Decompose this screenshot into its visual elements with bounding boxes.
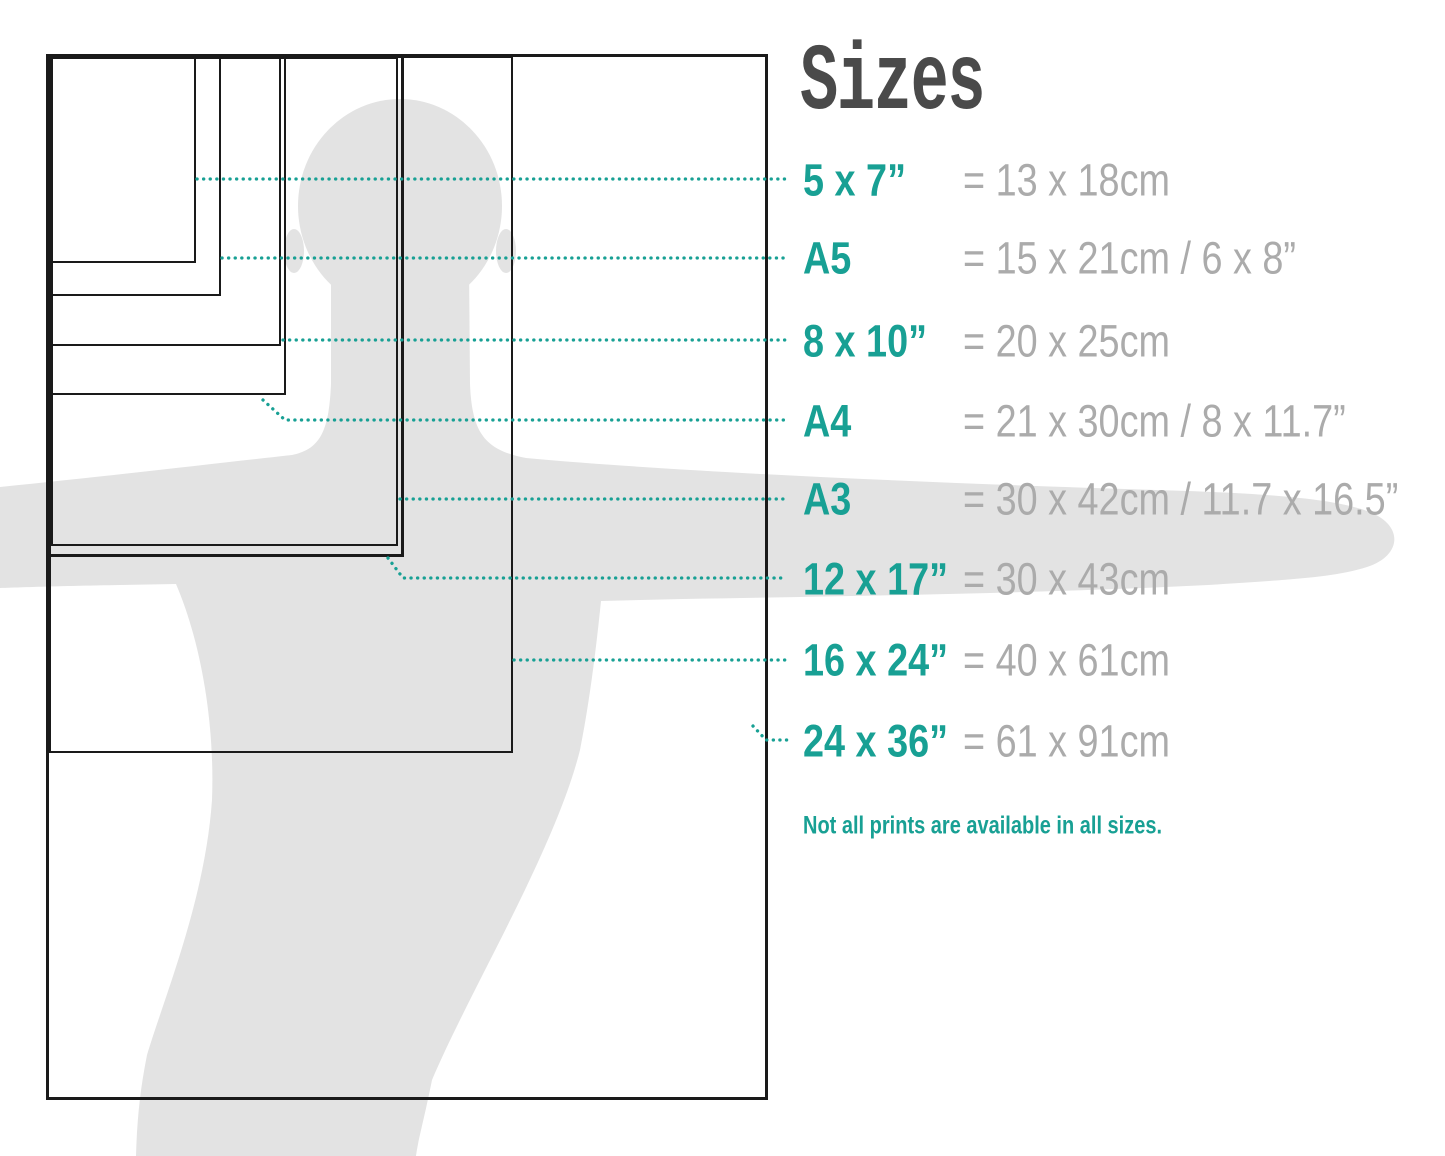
- size-guide-canvas: Sizes 5 x 7”= 13 x 18cmA5= 15 x 21cm / 6…: [0, 0, 1445, 1156]
- size-value: = 15 x 21cm / 6 x 8”: [963, 236, 1296, 281]
- size-value: = 20 x 25cm: [963, 319, 1170, 364]
- print-size-rect-a5: [51, 57, 221, 296]
- pointer-line-a4: [263, 400, 786, 420]
- size-label: 24 x 36”: [803, 719, 948, 764]
- size-label: A3: [803, 477, 851, 522]
- size-label: A4: [803, 399, 851, 444]
- print-size-rect-16x24: [49, 56, 513, 753]
- size-list: 5 x 7”= 13 x 18cmA5= 15 x 21cm / 6 x 8”8…: [0, 0, 1445, 1156]
- silhouette-ear-left: [284, 229, 304, 273]
- size-value: = 30 x 42cm / 11.7 x 16.5”: [963, 477, 1398, 522]
- person-silhouette: [0, 0, 1445, 1156]
- size-value: = 21 x 30cm / 8 x 11.7”: [963, 399, 1346, 444]
- print-size-rect-5x7: [51, 57, 196, 263]
- print-size-rect-24x36: [46, 54, 768, 1100]
- size-value: = 61 x 91cm: [963, 719, 1170, 764]
- size-label: 5 x 7”: [803, 158, 906, 203]
- pointer-lines: [0, 0, 1445, 1156]
- print-size-rect-a4: [51, 57, 286, 395]
- page-title: Sizes: [800, 36, 984, 131]
- size-value: = 30 x 43cm: [963, 557, 1170, 602]
- size-label: 12 x 17”: [803, 557, 948, 602]
- print-size-rectangles: [0, 0, 1445, 1156]
- pointer-line-12x17: [388, 558, 786, 578]
- size-label: 16 x 24”: [803, 638, 948, 683]
- silhouette-body: [0, 262, 1394, 1156]
- size-label: A5: [803, 236, 851, 281]
- print-size-rect-a3: [51, 57, 398, 546]
- print-size-rect-8x10: [51, 57, 281, 346]
- silhouette-ear-right: [496, 229, 516, 273]
- size-value: = 40 x 61cm: [963, 638, 1170, 683]
- size-label: 8 x 10”: [803, 319, 927, 364]
- availability-note: Not all prints are available in all size…: [803, 812, 1162, 841]
- silhouette-head: [298, 99, 502, 313]
- print-size-rect-12x17: [47, 54, 404, 557]
- size-value: = 13 x 18cm: [963, 158, 1170, 203]
- pointer-line-24x36: [753, 726, 791, 740]
